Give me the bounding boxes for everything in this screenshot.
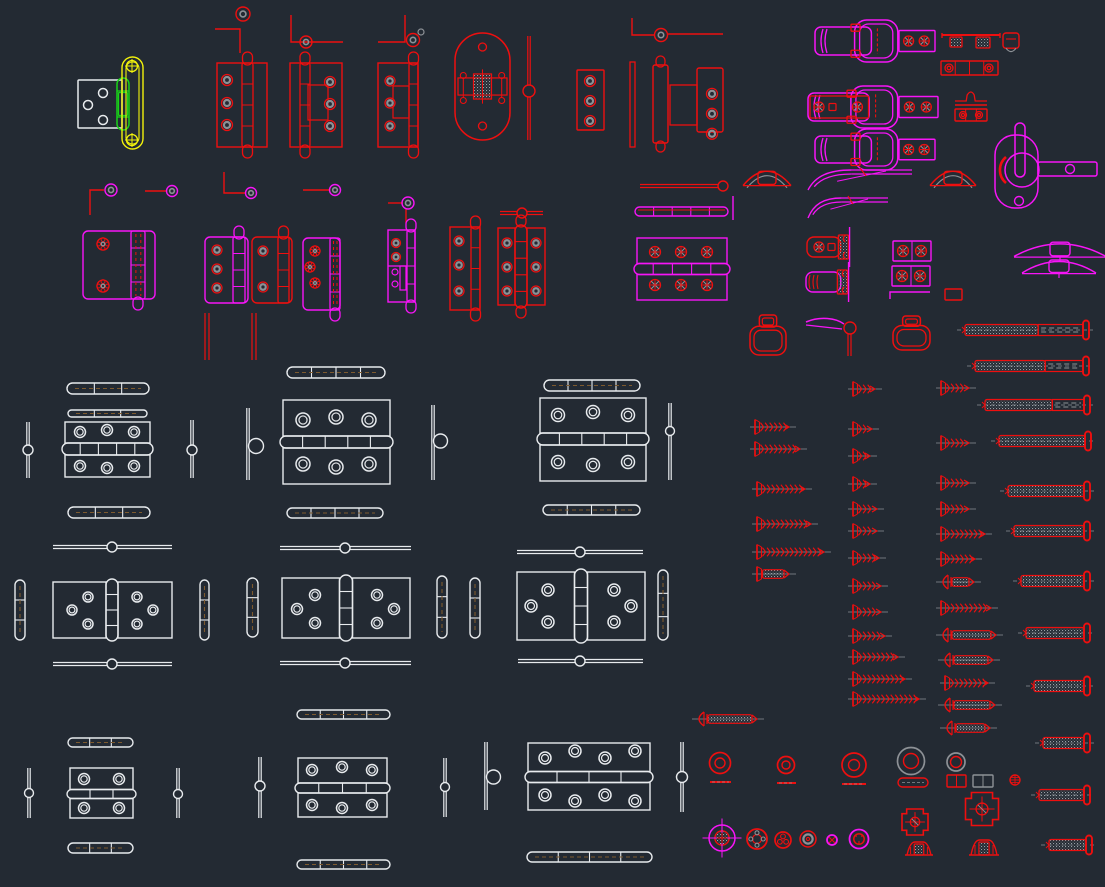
canvas-background[interactable] <box>0 0 1105 887</box>
mesh-head-small[interactable] <box>1010 775 1020 785</box>
cad-model-canvas[interactable] <box>0 0 1105 887</box>
cross-nut-1[interactable] <box>902 809 928 835</box>
cad-drawing-stage <box>0 0 1105 887</box>
